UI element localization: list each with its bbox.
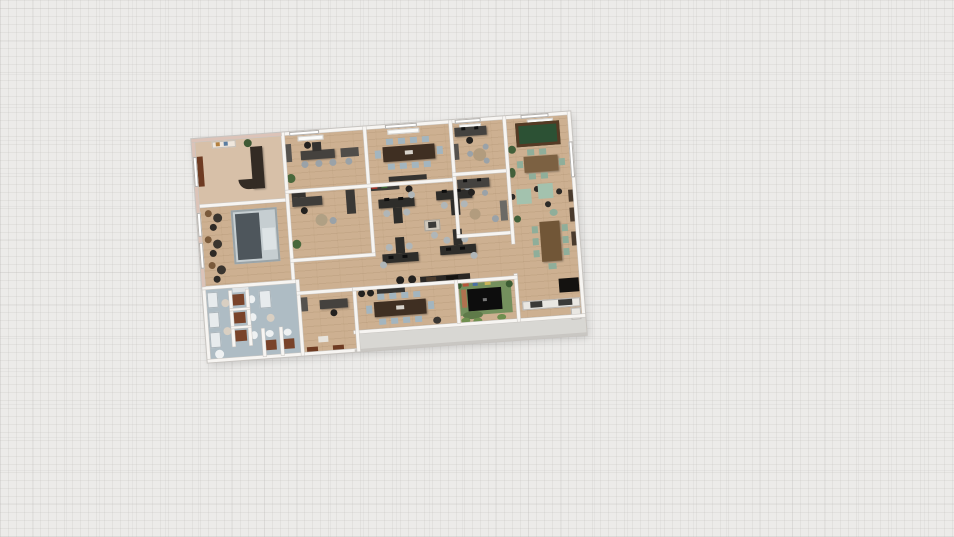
cafe-chair-brown-1[interactable] [205, 210, 212, 217]
cafe-table-1[interactable] [213, 213, 223, 223]
workstation-c-monitor-1[interactable] [388, 256, 393, 259]
office3-round-table[interactable] [315, 213, 328, 226]
breakroom-lt-chair-1[interactable] [532, 226, 538, 233]
service-core-stairs[interactable] [235, 212, 262, 260]
wall-v150 [353, 288, 361, 352]
conference-b-chair-t1[interactable] [377, 294, 384, 300]
conference-b-chair-t2[interactable] [389, 293, 396, 299]
conference-a-chair-t3[interactable] [410, 137, 417, 143]
cafe-chair-dark-2[interactable] [209, 250, 216, 257]
workstation-d-chair-1[interactable] [443, 237, 450, 244]
sink-unit-3[interactable] [210, 332, 222, 349]
cafe-table-3[interactable] [217, 265, 227, 275]
cafe-chair-brown-2[interactable] [204, 236, 211, 243]
counter-appliance-2[interactable] [558, 299, 572, 306]
breakroom-lt-chair-2[interactable] [532, 238, 538, 245]
office1-chair-2[interactable] [315, 160, 322, 167]
conference-b-centerpiece[interactable] [396, 305, 404, 310]
office4-chair[interactable] [468, 189, 475, 196]
workstation-c-stem[interactable] [395, 237, 405, 254]
wall-v312-top [502, 116, 514, 244]
office5-cabinet[interactable] [300, 297, 308, 311]
media-deco-2[interactable] [473, 283, 478, 286]
printer-chair[interactable] [431, 231, 438, 238]
sink-unit-2[interactable] [208, 312, 220, 329]
office2-chair-3[interactable] [483, 157, 489, 163]
workstation-c-chair-1[interactable] [386, 244, 393, 251]
office1-side-chair[interactable] [345, 157, 352, 164]
conference-a-chair-b1[interactable] [388, 163, 395, 169]
office1-chair-top[interactable] [304, 141, 311, 148]
wall-v172-top [363, 126, 370, 187]
office1-side-desk[interactable] [340, 147, 359, 157]
window-left-lounge-1 [197, 213, 203, 237]
breakroom-square-table-2[interactable] [538, 183, 554, 199]
conference-b-pouf[interactable] [433, 316, 441, 324]
service-core-counter[interactable] [262, 227, 277, 250]
office1-desk-return[interactable] [312, 142, 322, 152]
reception-shelf-item-2[interactable] [224, 142, 228, 146]
counter-appliance-1[interactable] [530, 301, 542, 308]
window-right-breakroom [568, 141, 575, 177]
ceiling-light-conference-a [387, 128, 419, 135]
office5-desk[interactable] [319, 298, 348, 309]
workstation-a-chair-1[interactable] [383, 210, 390, 217]
stall-door-2[interactable] [232, 312, 246, 324]
breakroom-chair-g5[interactable] [517, 161, 523, 168]
conference-b-chair-dark-1[interactable] [358, 290, 365, 297]
office5-side-item[interactable] [318, 336, 328, 343]
media-deco-1[interactable] [463, 283, 469, 286]
office2-chair-2[interactable] [482, 143, 488, 149]
workstation-d-chair-3[interactable] [470, 252, 477, 259]
office4-monitor-1[interactable] [463, 179, 467, 182]
cafe-chair-dark-1[interactable] [210, 224, 217, 231]
breakroom-chair-g1[interactable] [527, 149, 534, 155]
printer[interactable] [428, 222, 436, 229]
office3-desk[interactable] [292, 196, 323, 207]
conference-a-chair-b4[interactable] [424, 161, 431, 167]
office4-chair-3[interactable] [492, 215, 499, 222]
conference-a-chair-b3[interactable] [412, 162, 419, 168]
office4-desk[interactable] [457, 178, 490, 189]
floorplan[interactable] [191, 111, 586, 362]
office3-chair-black[interactable] [301, 207, 308, 214]
office4-chair-2[interactable] [482, 190, 488, 196]
conference-b-chair-b1[interactable] [379, 318, 386, 324]
stall-door-3[interactable] [233, 330, 247, 342]
workstation-d-monitor-2[interactable] [460, 246, 465, 249]
wall-office5-top [297, 288, 356, 295]
wall-office3-bottom [290, 253, 375, 262]
conference-a-chair-right[interactable] [436, 146, 443, 154]
window-left-lounge-2 [199, 243, 205, 269]
breakroom-green-pouf[interactable] [549, 209, 557, 217]
office2-monitor-2[interactable] [474, 126, 478, 129]
stall-door-1[interactable] [231, 294, 245, 306]
workstation-b-monitor-1[interactable] [442, 190, 447, 193]
breakroom-chair-g2[interactable] [539, 148, 546, 154]
office2-desk[interactable] [454, 126, 487, 137]
conference-b-chair-b3[interactable] [403, 317, 410, 323]
conference-b-chair-b2[interactable] [391, 318, 398, 324]
breakroom-plant-3[interactable] [514, 215, 521, 222]
sink-unit-1[interactable] [207, 292, 219, 309]
workstation-c-monitor-2[interactable] [402, 255, 407, 258]
stall-door-4[interactable] [264, 340, 277, 351]
design-canvas[interactable] [0, 0, 954, 537]
breakroom-plant-1[interactable] [508, 145, 517, 154]
office1-chair-3[interactable] [329, 159, 336, 166]
conference-a-chair-left[interactable] [375, 150, 382, 158]
media-screen-logo[interactable] [483, 298, 487, 301]
reception-shelf-item-1[interactable] [216, 142, 220, 146]
conference-a-centerpiece[interactable] [405, 150, 413, 155]
conference-b-chair-right[interactable] [428, 301, 435, 309]
workstation-a-monitor-2[interactable] [398, 197, 403, 200]
breakroom-lt-chair-3[interactable] [533, 250, 539, 257]
conference-b-chair-t4[interactable] [413, 291, 420, 297]
workstation-c-chair-3[interactable] [380, 261, 387, 268]
office4-cabinet[interactable] [500, 200, 508, 220]
reception-floor [191, 133, 286, 207]
media-deco-3[interactable] [485, 282, 491, 285]
breakroom-lt-chair-6[interactable] [563, 248, 569, 255]
cafe-chair-dark-3[interactable] [213, 275, 220, 282]
breakroom-square-table-1[interactable] [516, 188, 532, 204]
breakroom-long-table[interactable] [539, 220, 562, 261]
workstation-b-chair-2[interactable] [461, 200, 468, 207]
breakroom-lt-chair-5[interactable] [562, 236, 568, 243]
stall-door-5[interactable] [282, 338, 295, 349]
office2-monitor-1[interactable] [461, 127, 465, 130]
fireplace[interactable] [559, 277, 580, 292]
wall-v312-bottom [514, 274, 521, 322]
cafe-table-2[interactable] [213, 239, 223, 249]
office2-chair[interactable] [466, 137, 473, 144]
breakroom-chair-g6[interactable] [559, 158, 565, 165]
workstation-a-stem[interactable] [393, 207, 403, 224]
breakroom-lt-chair-4[interactable] [562, 224, 568, 231]
workstation-d-monitor-1[interactable] [446, 247, 451, 250]
workstation-a-chair-2[interactable] [403, 208, 410, 215]
office3-plant[interactable] [292, 239, 302, 249]
cafe-chair-brown-3[interactable] [208, 262, 215, 269]
breakroom-chair-g3[interactable] [529, 173, 536, 179]
ceiling-light-office1 [297, 135, 323, 142]
office1-chair-1[interactable] [301, 161, 308, 168]
conference-a-chair-b2[interactable] [400, 163, 407, 169]
media-plant-2[interactable] [506, 280, 513, 287]
breakroom-pouf-4[interactable] [545, 201, 551, 207]
conference-b-chair-dark-2[interactable] [367, 289, 374, 296]
conference-b-chair-b4[interactable] [415, 316, 422, 322]
office3-chair-gray[interactable] [329, 217, 336, 224]
conference-b-chair-t3[interactable] [401, 292, 408, 298]
wall-office2-bottom [452, 169, 509, 176]
workstation-c-chair-2[interactable] [405, 242, 412, 249]
sink-unit-4[interactable] [259, 290, 272, 309]
breakroom-lt-chair-end[interactable] [548, 263, 556, 270]
workstation-b-chair-1[interactable] [441, 202, 448, 209]
conference-a-chair-t2[interactable] [398, 138, 405, 144]
pool-table[interactable] [515, 120, 561, 147]
conference-a-chair-t4[interactable] [422, 136, 429, 142]
conference-b-chair-left[interactable] [366, 305, 373, 313]
office4-monitor-2[interactable] [477, 178, 481, 181]
breakroom-dining-table[interactable] [523, 154, 558, 172]
office5-chair[interactable] [330, 309, 337, 316]
office3-cabinet[interactable] [345, 189, 356, 214]
breakroom-chair-g4[interactable] [541, 172, 548, 178]
workstation-a-monitor-1[interactable] [384, 198, 389, 201]
breakroom-pouf-3[interactable] [556, 188, 562, 194]
wall-office4-bottom [457, 231, 514, 238]
wall-v172-mid [367, 184, 375, 256]
office4-round-table[interactable] [469, 208, 481, 220]
conference-a-chair-t1[interactable] [386, 138, 393, 144]
sideboard-item-1[interactable] [426, 277, 436, 282]
